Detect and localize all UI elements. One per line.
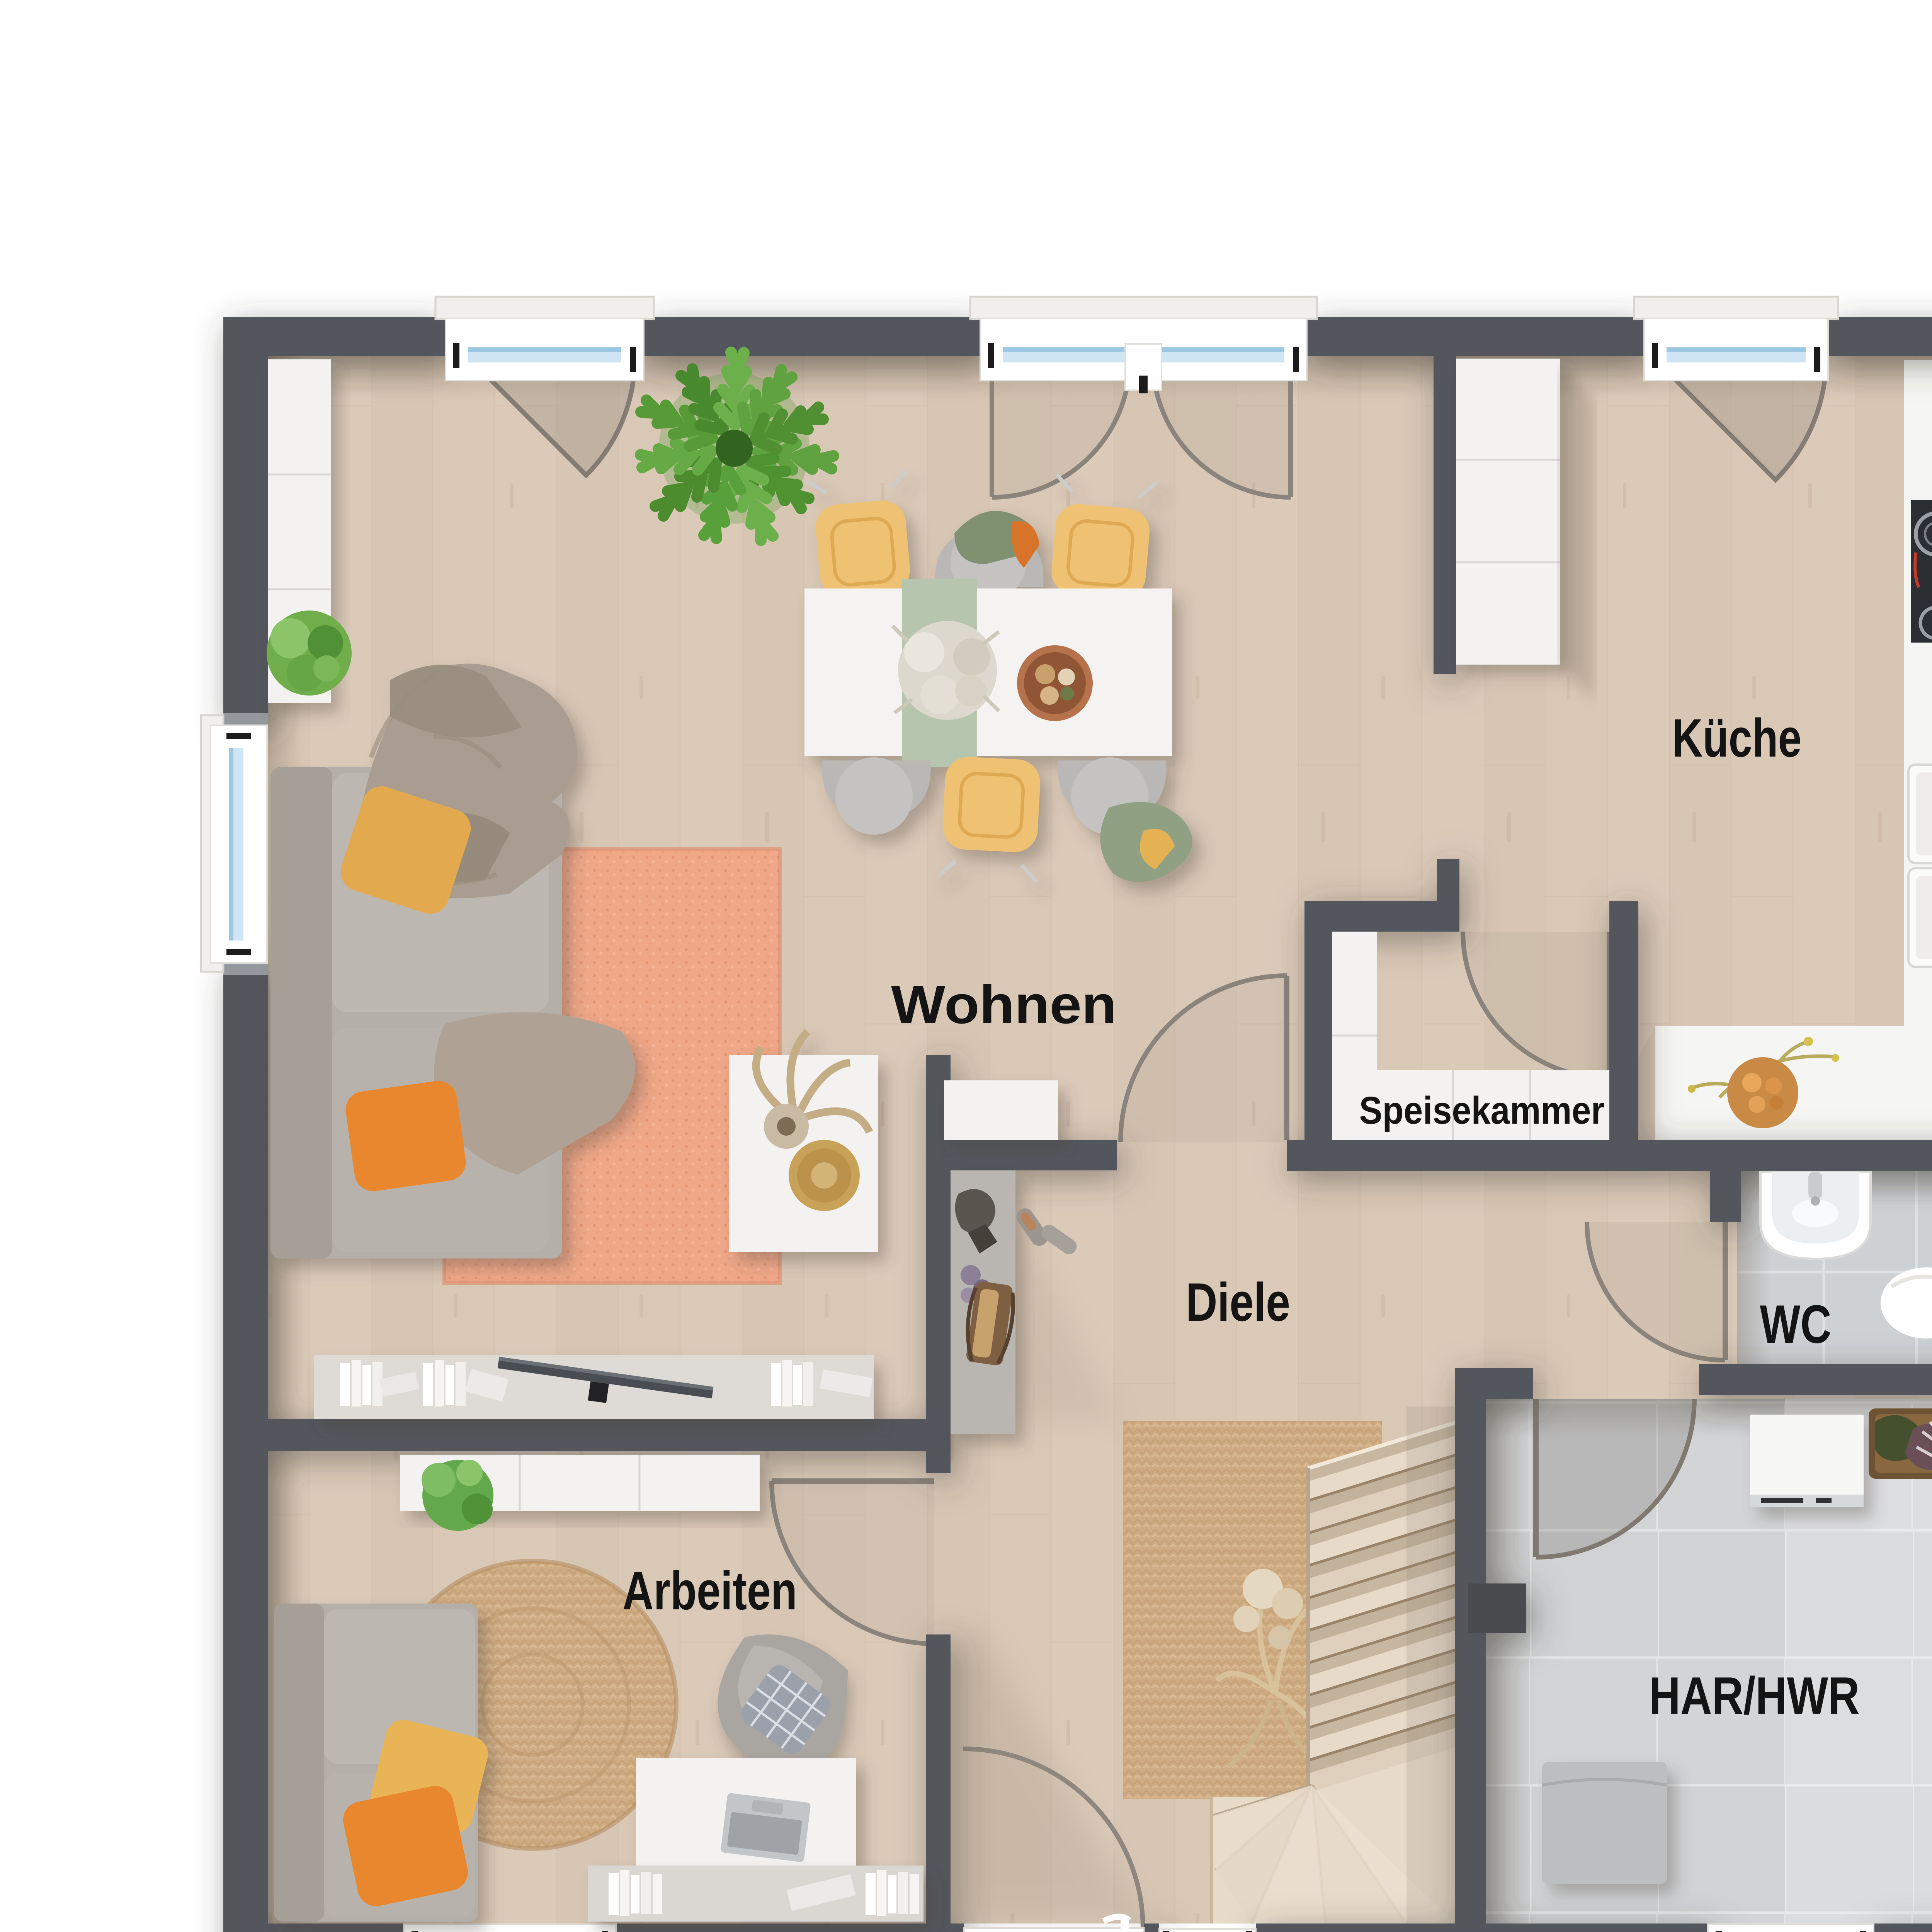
- svg-text:Küche: Küche: [1672, 707, 1802, 768]
- svg-text:HAR/HWR: HAR/HWR: [1649, 1666, 1860, 1725]
- svg-text:WC: WC: [1760, 1294, 1832, 1354]
- svg-text:Speisekammer: Speisekammer: [1359, 1089, 1605, 1132]
- svg-text:Wohnen: Wohnen: [891, 974, 1117, 1035]
- svg-text:Arbeiten: Arbeiten: [622, 1560, 797, 1621]
- svg-text:Diele: Diele: [1186, 1272, 1290, 1332]
